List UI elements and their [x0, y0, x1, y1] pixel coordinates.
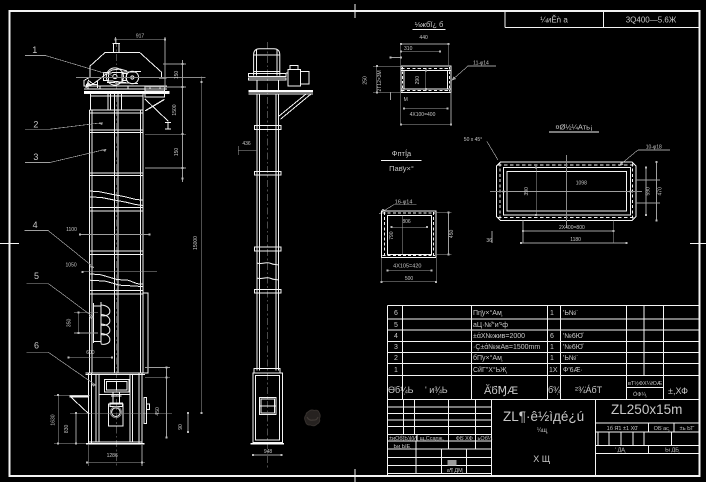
svg-text:·Ç±ά№жАв=1500mm: ·Ç±ά№жАв=1500mm [473, 343, 540, 351]
svg-text:4X105=420: 4X105=420 [393, 264, 421, 270]
svg-text:3Q400—5.6Ж: 3Q400—5.6Ж [626, 16, 677, 25]
svg-text:¼щ̧: ¼щ̧ [537, 428, 548, 434]
svg-text:1: 1 [394, 367, 398, 374]
svg-text:4: 4 [394, 333, 398, 340]
svg-text:'№6Ю̆: '№6Ю̆ [563, 332, 584, 340]
svg-text:2X400=800: 2X400=800 [559, 225, 585, 231]
svg-text:3: 3 [394, 344, 398, 351]
svg-text:1180: 1180 [570, 237, 581, 243]
svg-text:806: 806 [402, 219, 411, 225]
svg-text:36: 36 [486, 238, 492, 244]
svg-text:10-φ18: 10-φ18 [646, 144, 662, 150]
svg-text:ZL¶·ê½ìдé¿ú: ZL¶·ê½ìдé¿ú [503, 409, 584, 424]
svg-text:' и¾̣Ь: ' и¾̣Ь [425, 385, 448, 395]
svg-text:4X100=400: 4X100=400 [410, 112, 436, 118]
svg-text:830: 830 [64, 425, 70, 434]
svg-text:1286: 1286 [107, 453, 118, 459]
svg-text:1б Я̇1 ±1 Х0̆: 1б Я̇1 ±1 Х0̆ [607, 426, 639, 432]
svg-text:Пη̈у×°Ам̧: Пη̈у×°Ам̧ [473, 309, 503, 317]
svg-text:790: 790 [389, 231, 395, 240]
svg-text:'Ь№̈: 'Ь№̈ [563, 355, 577, 362]
svg-text:±и̧Об̈(Ь)|(И: ±и̧Об̈(Ь)|(И [389, 436, 417, 442]
svg-text:150: 150 [174, 71, 180, 80]
svg-text:1630: 1630 [51, 414, 57, 425]
svg-text:6: 6 [34, 340, 39, 350]
svg-text:2T12×3M: 2T12×3M [377, 70, 383, 91]
svg-text:450: 450 [449, 230, 455, 239]
svg-text:50 x 45°: 50 x 45° [464, 137, 482, 143]
svg-text:±,ХФ: ±,ХФ [668, 386, 688, 396]
svg-text:щ,Сса̧ηж,: щ,Сса̧ηж, [420, 436, 445, 442]
svg-text:±ь ЬТ̆: ±ь ЬТ̆ [680, 426, 695, 432]
svg-text:1050: 1050 [66, 263, 77, 269]
svg-text:2: 2 [394, 355, 398, 362]
svg-text:250: 250 [363, 76, 369, 85]
svg-text:'№6Ю̆: '№6Ю̆ [563, 343, 584, 351]
svg-text:450: 450 [155, 407, 161, 416]
svg-text:4: 4 [33, 220, 38, 230]
svg-text:390: 390 [524, 187, 530, 196]
svg-text:470: 470 [658, 187, 664, 196]
svg-text:310: 310 [404, 46, 413, 52]
svg-text:ьОб̈¼: ьОб̈¼ [478, 436, 493, 442]
svg-text:аЦ·№̆°и′¹ф: аЦ·№̆°и′¹ф [473, 321, 508, 329]
svg-text:440: 440 [419, 35, 428, 41]
svg-text:1100: 1100 [66, 227, 77, 233]
svg-text:1: 1 [550, 344, 554, 351]
svg-text:ОБ̈ ас̧: ОБ̈ ас̧ [654, 426, 670, 432]
svg-text:ZL250x15m: ZL250x15m [611, 402, 682, 417]
svg-text:ФБ̇ ХФ: ФБ̇ ХФ [456, 436, 473, 442]
svg-text:1X: 1X [549, 367, 558, 374]
svg-text:Ьи̧ ЫЕ̧: Ьи̧ ЫЕ̧ [394, 444, 412, 450]
svg-text:а¶̇ ДМ̧: а¶̇ ДМ̧ [447, 468, 464, 474]
svg-text:Ѳ̇б¼̣Ь: Ѳ̇б¼̣Ь [388, 385, 414, 395]
svg-text:бП̈у×°Ам̧: бП̈у×°Ам̧ [473, 354, 503, 362]
svg-text:Сй̈Г"Х°ЬЖ̧: Сй̈Г"Х°ЬЖ̧ [473, 366, 508, 374]
svg-text:вТ½̣ФХ¼ЮÆ: вТ½̣ФХ¼ЮÆ [628, 380, 663, 387]
svg-text:150: 150 [174, 148, 180, 157]
svg-text:6: 6 [550, 333, 554, 340]
svg-text:948: 948 [264, 449, 273, 455]
svg-text:' ДА̧: ' ДА̧ [615, 448, 626, 454]
svg-text:436: 436 [242, 141, 251, 147]
svg-text:M: M [404, 97, 408, 103]
svg-text:1098: 1098 [576, 181, 587, 187]
svg-text:Пав̈у×°: Пав̈у×° [389, 164, 414, 173]
svg-text:5: 5 [34, 271, 39, 281]
svg-text:5: 5 [394, 322, 398, 329]
svg-text:350: 350 [67, 319, 73, 328]
svg-text:Ьι ДБ̧: Ьι ДБ̧ [665, 448, 680, 454]
svg-text:600: 600 [86, 350, 95, 356]
svg-text:6: 6 [394, 310, 398, 317]
svg-text:90: 90 [178, 424, 184, 430]
svg-text:'Ь№̈: 'Ь№̈ [563, 310, 577, 317]
svg-text:ФптÍ̡а: ФптÍ̡а [392, 149, 412, 158]
svg-text:⅛жбЇ¿ б: ⅛жбЇ¿ б [415, 20, 444, 29]
svg-text:1500: 1500 [172, 104, 178, 115]
svg-text:11-φ14: 11-φ14 [473, 61, 489, 67]
svg-text:Х Щ: Х Щ [533, 454, 551, 464]
svg-text:¼иЕ̌ǹ а: ¼иЕ̌ǹ а [540, 16, 568, 25]
svg-text:2: 2 [33, 119, 38, 129]
svg-text:ÓФ¼̧: ÓФ¼̧ [633, 391, 647, 398]
svg-text:б̇¾̣: б̇¾̣ [548, 385, 561, 395]
svg-text:590: 590 [646, 187, 652, 196]
svg-text:290: 290 [415, 76, 421, 85]
svg-text:1: 1 [550, 355, 554, 362]
svg-text:1: 1 [32, 45, 37, 55]
svg-text:²¾̇А́бТ: ²¾̇А́бТ [575, 384, 603, 395]
svg-text:±άХ№жив=2000: ±άХ№жив=2000 [473, 332, 525, 340]
svg-text:Ӑ̈б̈ⱮÆ: Ӑ̈б̈ⱮÆ [484, 384, 518, 397]
svg-text:¤Ø½¼Ать¡: ¤Ø½¼Ать¡ [555, 123, 592, 132]
svg-text:917: 917 [136, 34, 145, 40]
svg-text:1: 1 [550, 310, 554, 317]
svg-text:15000: 15000 [193, 236, 199, 250]
svg-text:Ф'6Æ·: Ф'6Æ· [563, 367, 583, 374]
svg-text:3: 3 [33, 152, 38, 162]
svg-text:500: 500 [405, 276, 414, 282]
